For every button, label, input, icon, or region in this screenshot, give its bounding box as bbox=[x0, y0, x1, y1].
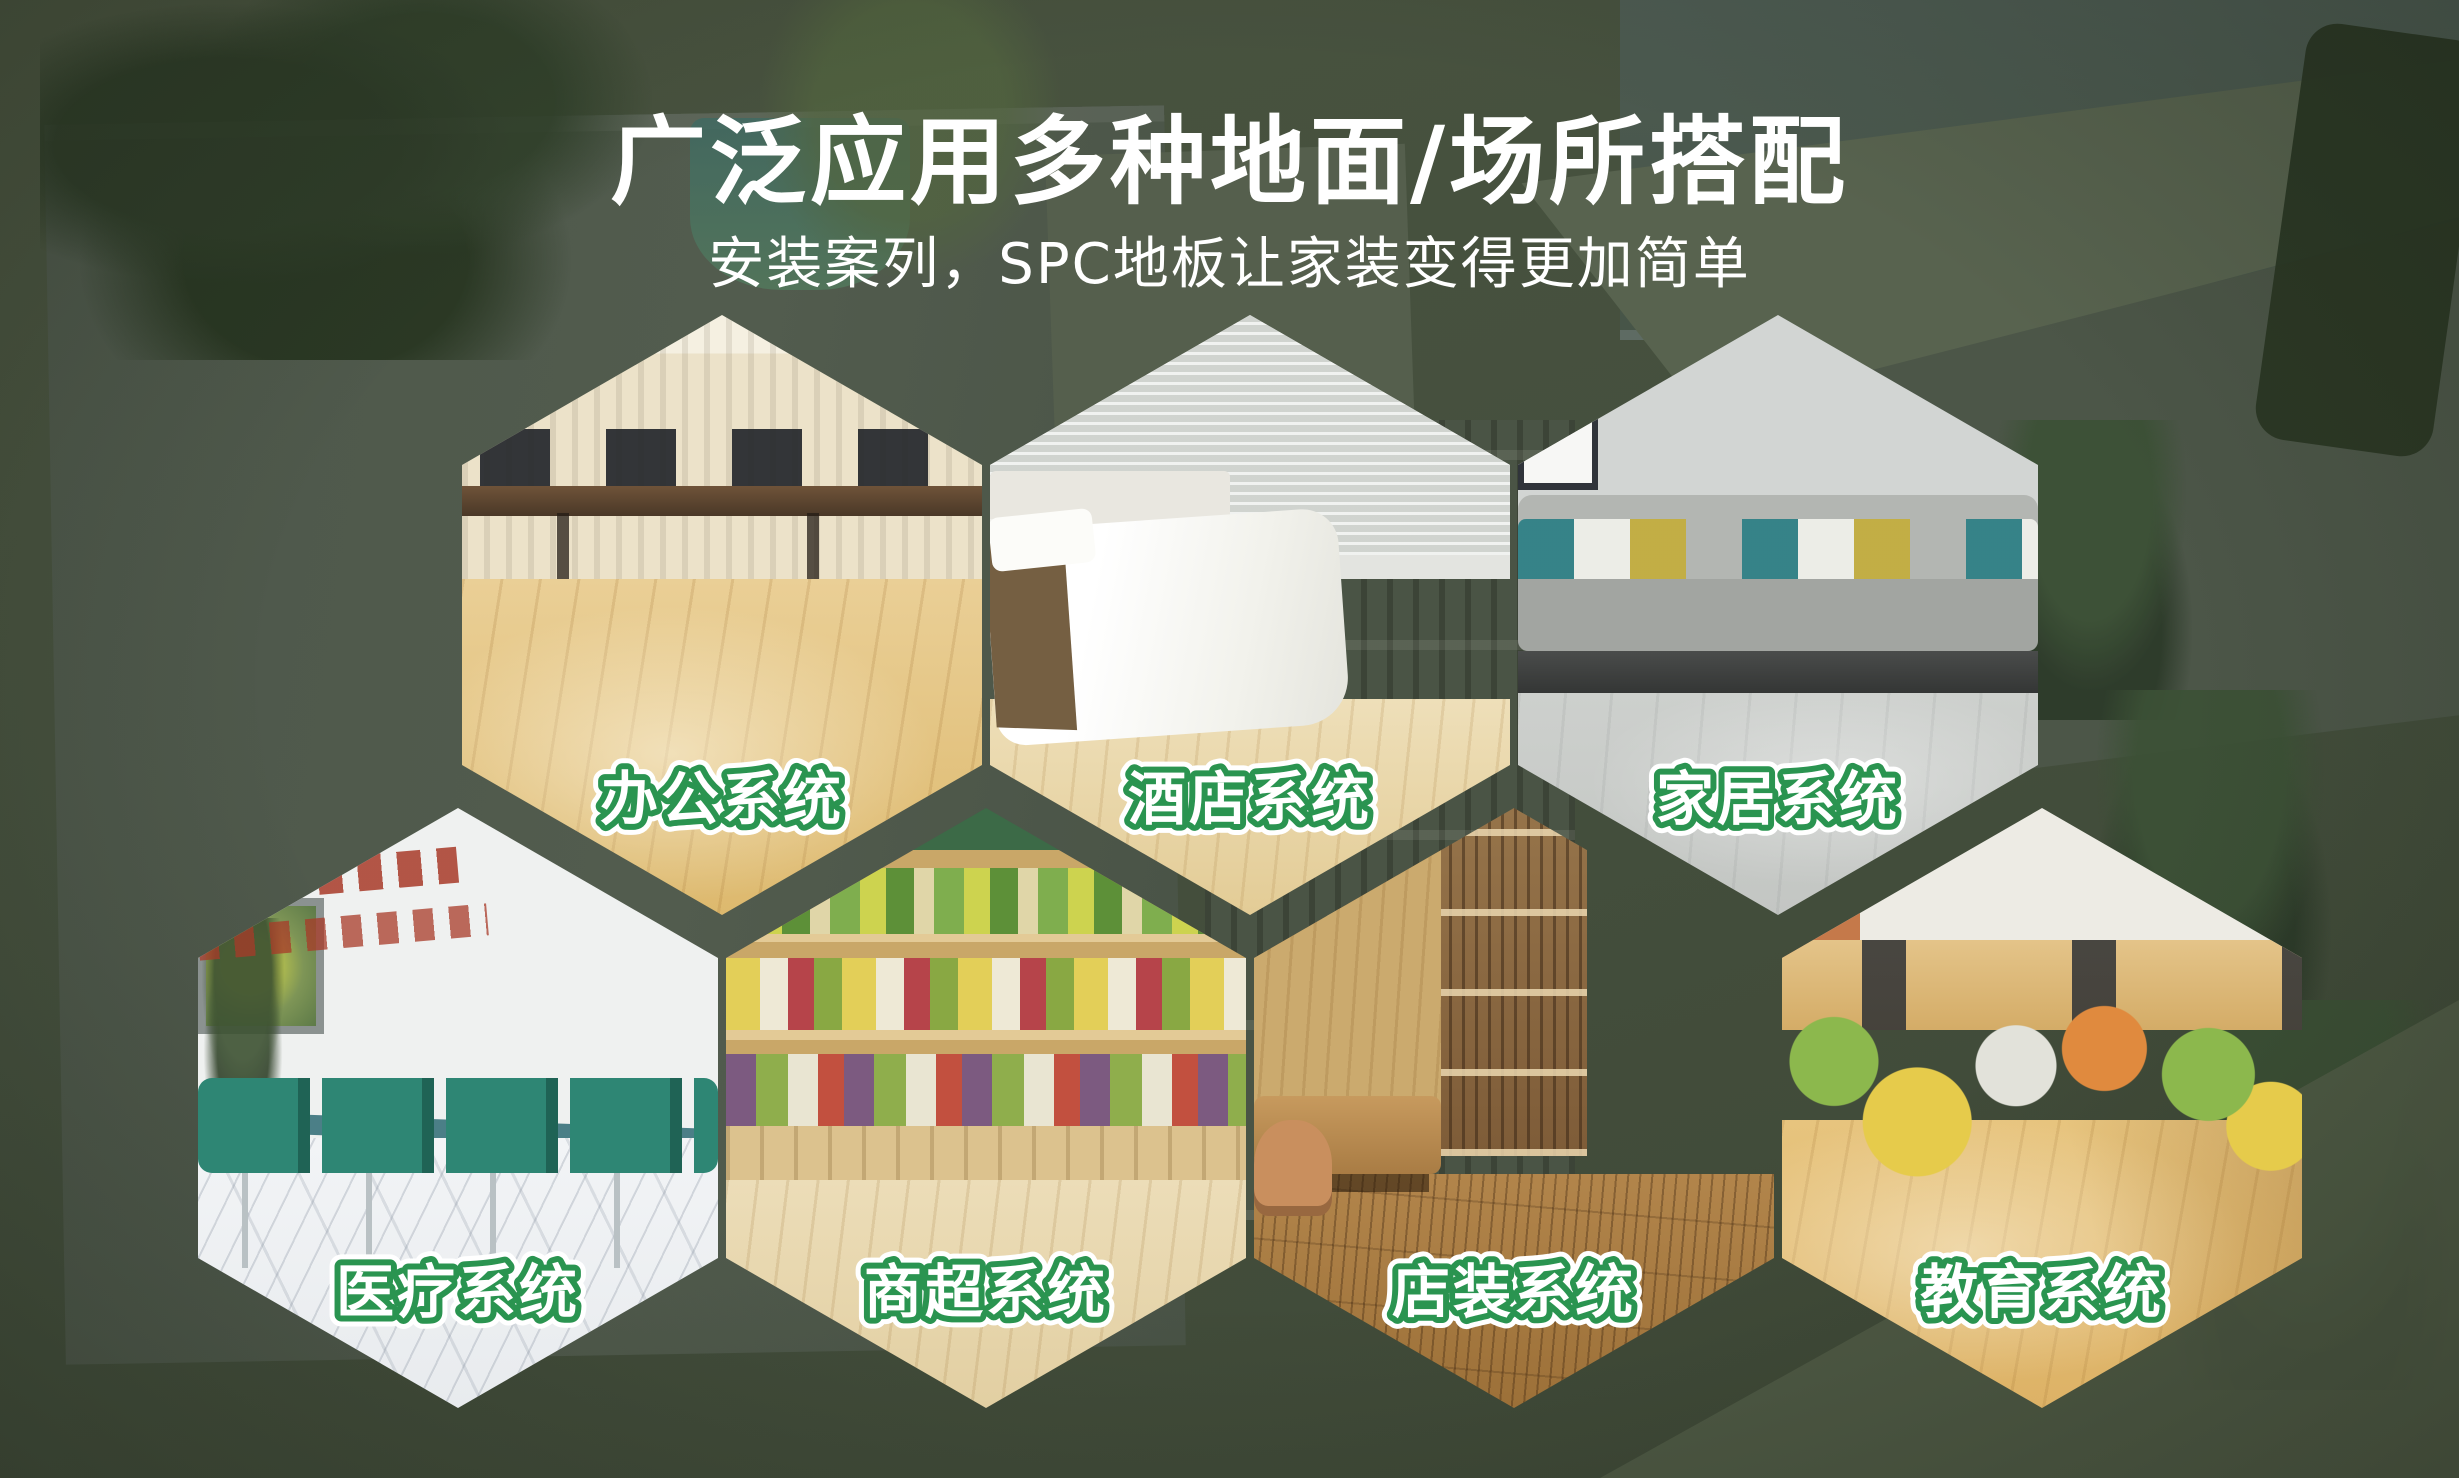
svg-text:办公系统: 办公系统 bbox=[600, 765, 844, 833]
svg-text:医疗系统: 医疗系统 bbox=[336, 1258, 580, 1326]
poster-canvas: 广泛应用多种地面/场所搭配 安装案列，SPC地板让家装变得更加简单 办公系统 办… bbox=[0, 0, 2459, 1478]
supermarket-produce-row bbox=[726, 1054, 1246, 1136]
supermarket-shelf-front bbox=[726, 1126, 1246, 1180]
svg-text:商超系统: 商超系统 bbox=[864, 1258, 1108, 1326]
office-monitors bbox=[462, 429, 982, 489]
poster-subtitle: 安装案列，SPC地板让家装变得更加简单 bbox=[0, 234, 2459, 296]
medical-bench-seats bbox=[198, 1078, 718, 1173]
home-sofa-base bbox=[1518, 651, 2038, 693]
svg-text:店装系统: 店装系统 bbox=[1392, 1258, 1636, 1326]
svg-text:酒店系统: 酒店系统 bbox=[1128, 765, 1372, 833]
home-sofa-seat bbox=[1518, 579, 2038, 651]
hotel-pillow bbox=[987, 508, 1096, 573]
svg-text:教育系统: 教育系统 bbox=[1920, 1258, 2164, 1326]
svg-text:家居系统: 家居系统 bbox=[1656, 765, 1900, 833]
poster-title: 广泛应用多种地面/场所搭配 bbox=[0, 112, 2459, 213]
education-stools bbox=[1782, 988, 2302, 1204]
store-chair bbox=[1254, 1120, 1332, 1216]
office-desk bbox=[462, 486, 982, 516]
supermarket-produce-row bbox=[726, 958, 1246, 1040]
